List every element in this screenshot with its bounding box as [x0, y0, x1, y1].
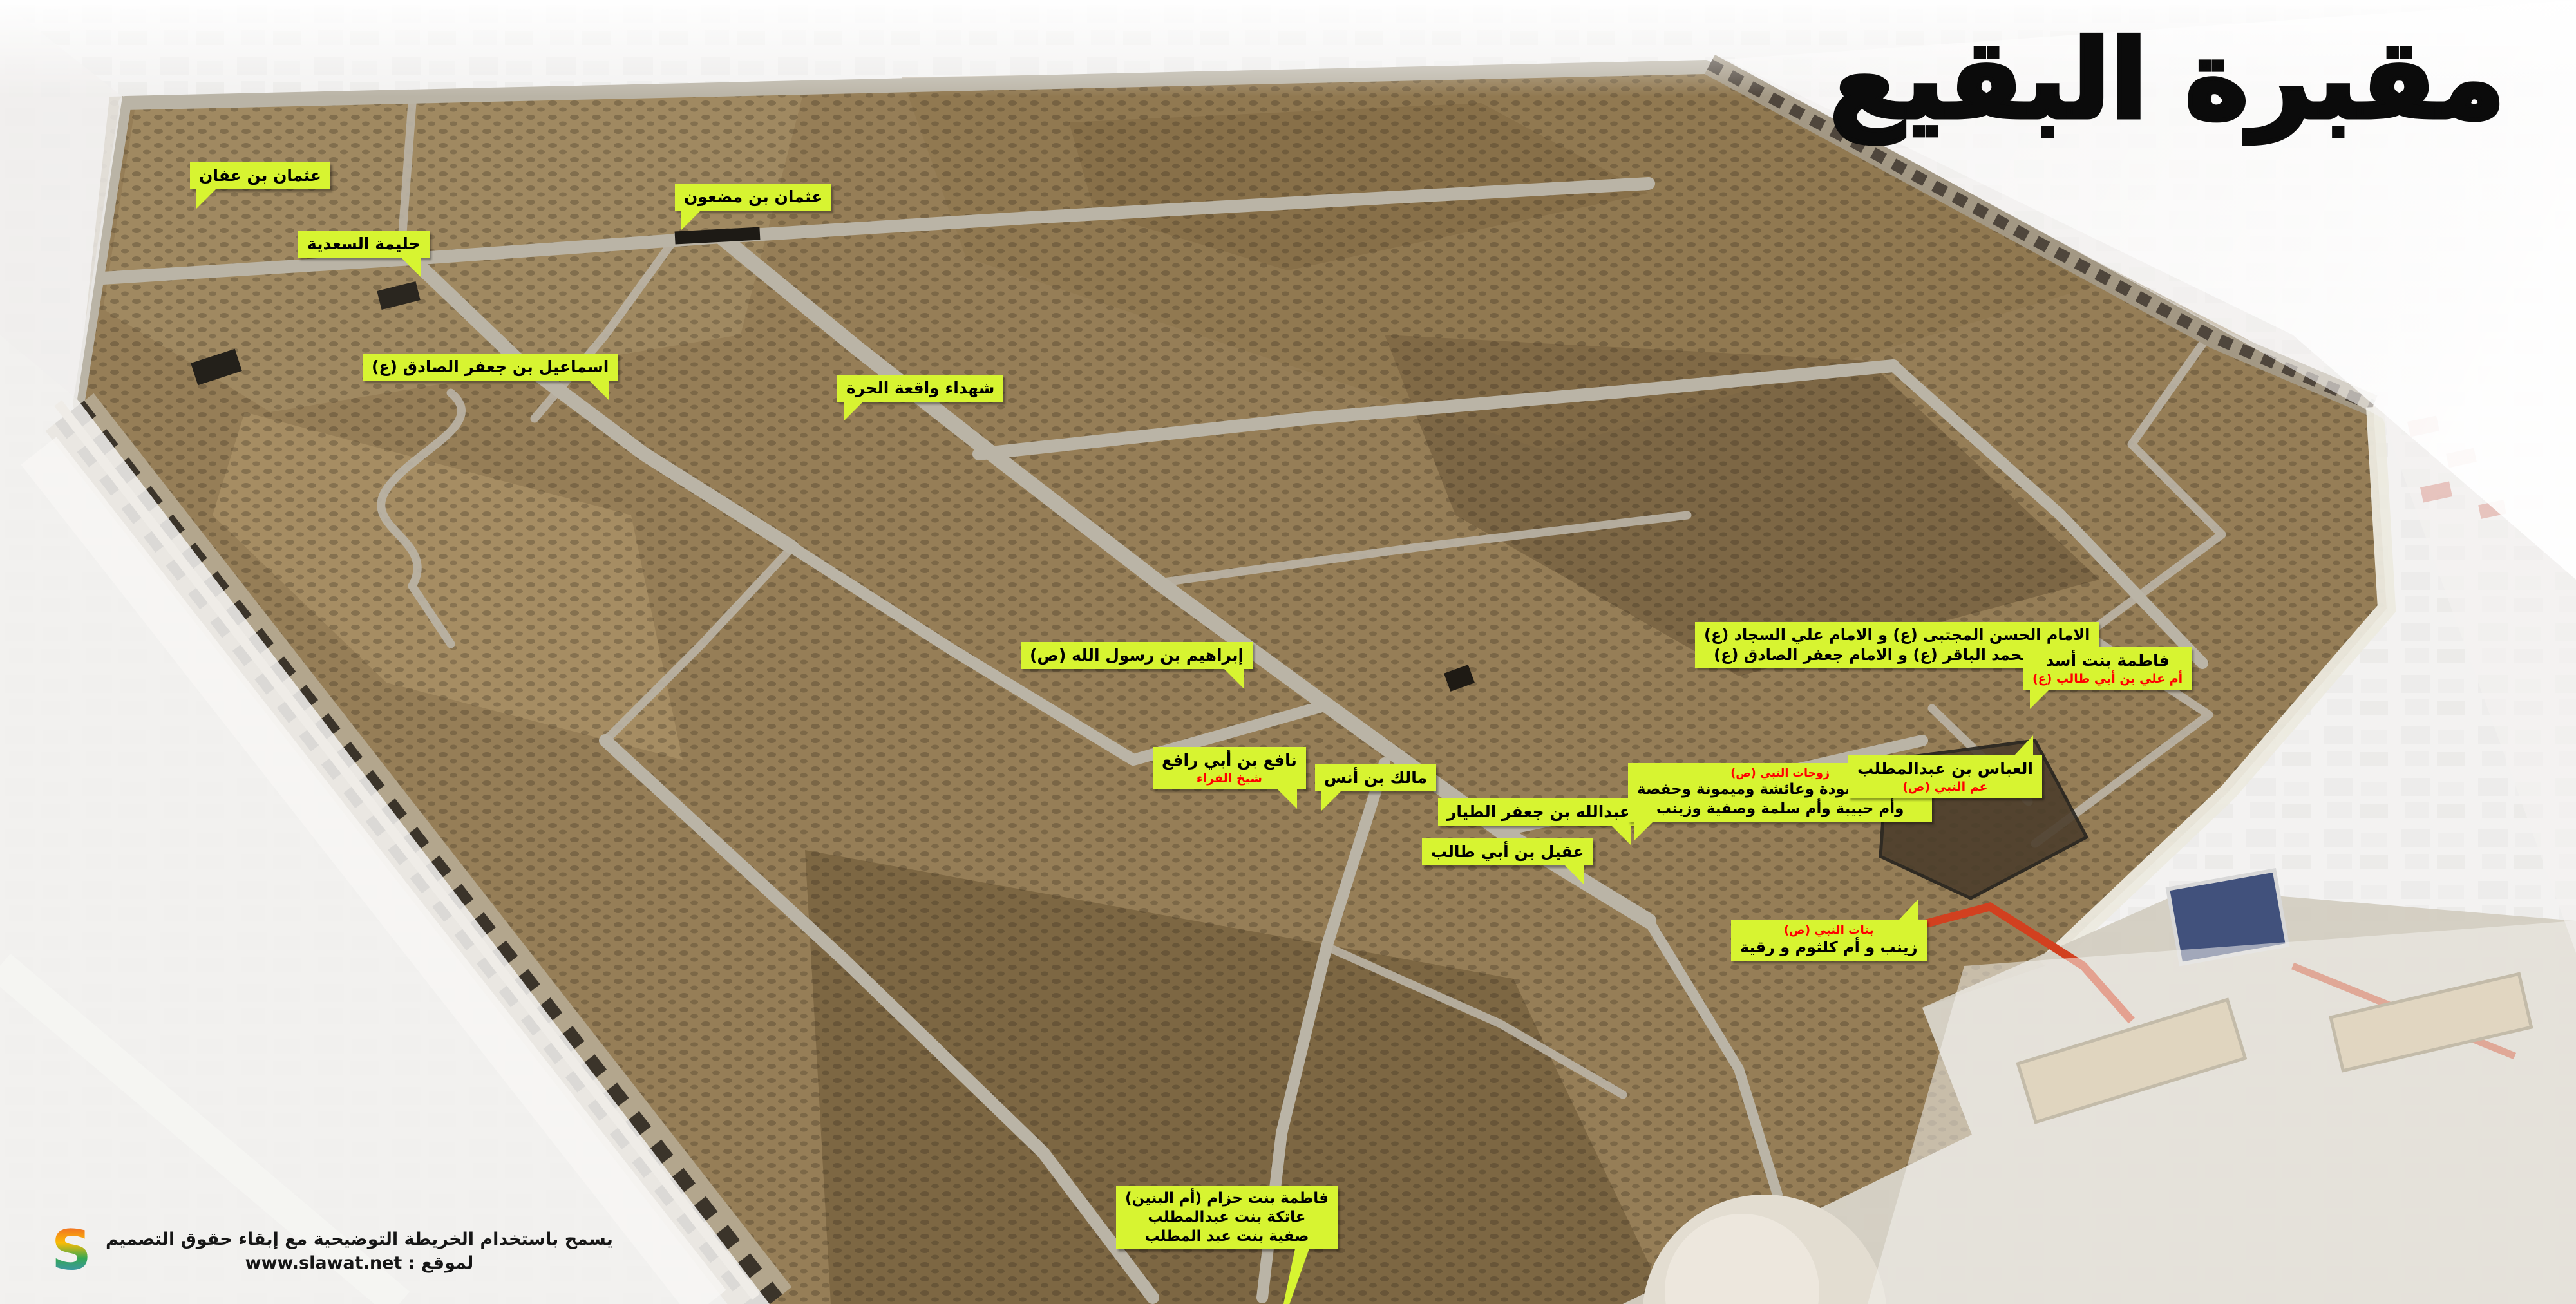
- grave-label-uthman-ibn-mazun: عثمان بن مضعون: [675, 184, 831, 211]
- label-line: عثمان بن عفان: [199, 165, 321, 186]
- svg-text:S: S: [52, 1224, 91, 1278]
- label-line: شيخ القراء: [1162, 771, 1297, 786]
- grave-label-aqeel-ibn-abi-talib: عقيل بن أبي طالب: [1422, 838, 1593, 865]
- baqi-cemetery-map-page: مقبرة البقيع عثمان بن عفانحليمة السعديةع…: [0, 0, 2576, 1304]
- label-line: فاطمة بنت أسد: [2032, 650, 2183, 671]
- grave-label-abdullah-ibn-jafar-altayyar: عبدالله بن جعفر الطيار: [1438, 798, 1640, 826]
- label-line: مالك بن أنس: [1324, 768, 1427, 788]
- grave-label-uthman-ibn-affan: عثمان بن عفان: [190, 162, 330, 189]
- label-line: العباس بن عبدالمطلب: [1857, 759, 2033, 779]
- credit-text: يسمح باستخدام الخريطة التوضيحية مع إبقاء…: [106, 1229, 613, 1273]
- credit-line-1: يسمح باستخدام الخريطة التوضيحية مع إبقاء…: [106, 1229, 613, 1249]
- slawat-logo-icon: S: [52, 1224, 91, 1278]
- grave-label-ismail-ibn-jafar-alsadiq: اسماعيل بن جعفر الصادق (ع): [363, 354, 618, 381]
- label-line: زينب و أم كلثوم و رقية: [1740, 938, 1918, 958]
- label-line: شهداء واقعة الحرة: [846, 378, 994, 399]
- grave-label-nafi-ibn-abi-rafi: نافع بن أبي رافعشيخ القراء: [1153, 747, 1306, 789]
- label-layer: عثمان بن عفانحليمة السعديةعثمان بن مضعون…: [0, 0, 2576, 1304]
- label-line: اسماعيل بن جعفر الصادق (ع): [372, 357, 609, 377]
- credit-line-2[interactable]: لموقع : www.slawat.net: [106, 1253, 613, 1273]
- credit-block: S يسمح باستخدام الخريطة التوضيحية مع إبق…: [52, 1224, 613, 1278]
- label-line: نافع بن أبي رافع: [1162, 750, 1297, 771]
- grave-label-daughters-of-the-prophet: بنات النبي (ص)زينب و أم كلثوم و رقية: [1731, 920, 1927, 961]
- grave-label-umm-albanin-group: فاطمة بنت حزام (أم البنين)عاتكة بنت عبدا…: [1116, 1186, 1338, 1249]
- label-line: أم علي بن أبي طالب (ع): [2032, 671, 2183, 686]
- label-line: عثمان بن مضعون: [684, 187, 822, 207]
- label-line: بنات النبي (ص): [1740, 923, 1918, 938]
- label-line: عم النبي (ص): [1857, 779, 2033, 795]
- label-line: وأم حبيبة وأم سلمة وصفية وزينب: [1637, 800, 1923, 818]
- label-line: إبراهيم بن رسول الله (ص): [1030, 645, 1244, 666]
- label-line: صفية بنت عبد المطلب: [1125, 1227, 1329, 1246]
- grave-label-ibrahim-ibn-rasul-allah: إبراهيم بن رسول الله (ص): [1021, 642, 1253, 669]
- label-line: عاتكة بنت عبدالمطلب: [1125, 1208, 1329, 1227]
- grave-label-abbas-ibn-abdulmuttalib: العباس بن عبدالمطلبعم النبي (ص): [1848, 755, 2042, 798]
- label-line: فاطمة بنت حزام (أم البنين): [1125, 1189, 1329, 1208]
- label-line: عبدالله بن جعفر الطيار: [1447, 802, 1631, 822]
- grave-label-shuhada-alharra: شهداء واقعة الحرة: [837, 375, 1003, 402]
- grave-label-malik-ibn-anas: مالك بن أنس: [1315, 764, 1436, 791]
- grave-label-halima-al-saadia: حليمة السعدية: [298, 231, 430, 258]
- label-line: حليمة السعدية: [307, 234, 421, 254]
- grave-label-fatima-bint-asad: فاطمة بنت أسدأم علي بن أبي طالب (ع): [2023, 647, 2192, 690]
- label-line: عقيل بن أبي طالب: [1431, 842, 1584, 862]
- label-line: الامام الحسن المجتبى (ع) و الامام علي ال…: [1704, 625, 2090, 645]
